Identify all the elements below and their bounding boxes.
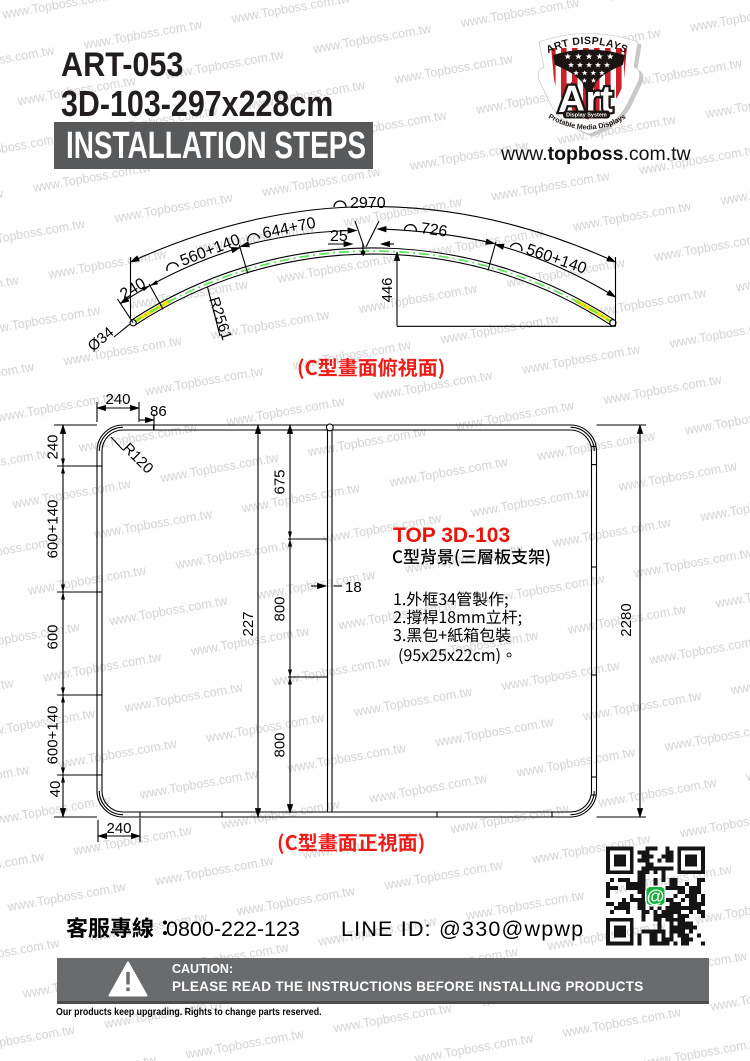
svg-text:@: @: [647, 887, 665, 907]
